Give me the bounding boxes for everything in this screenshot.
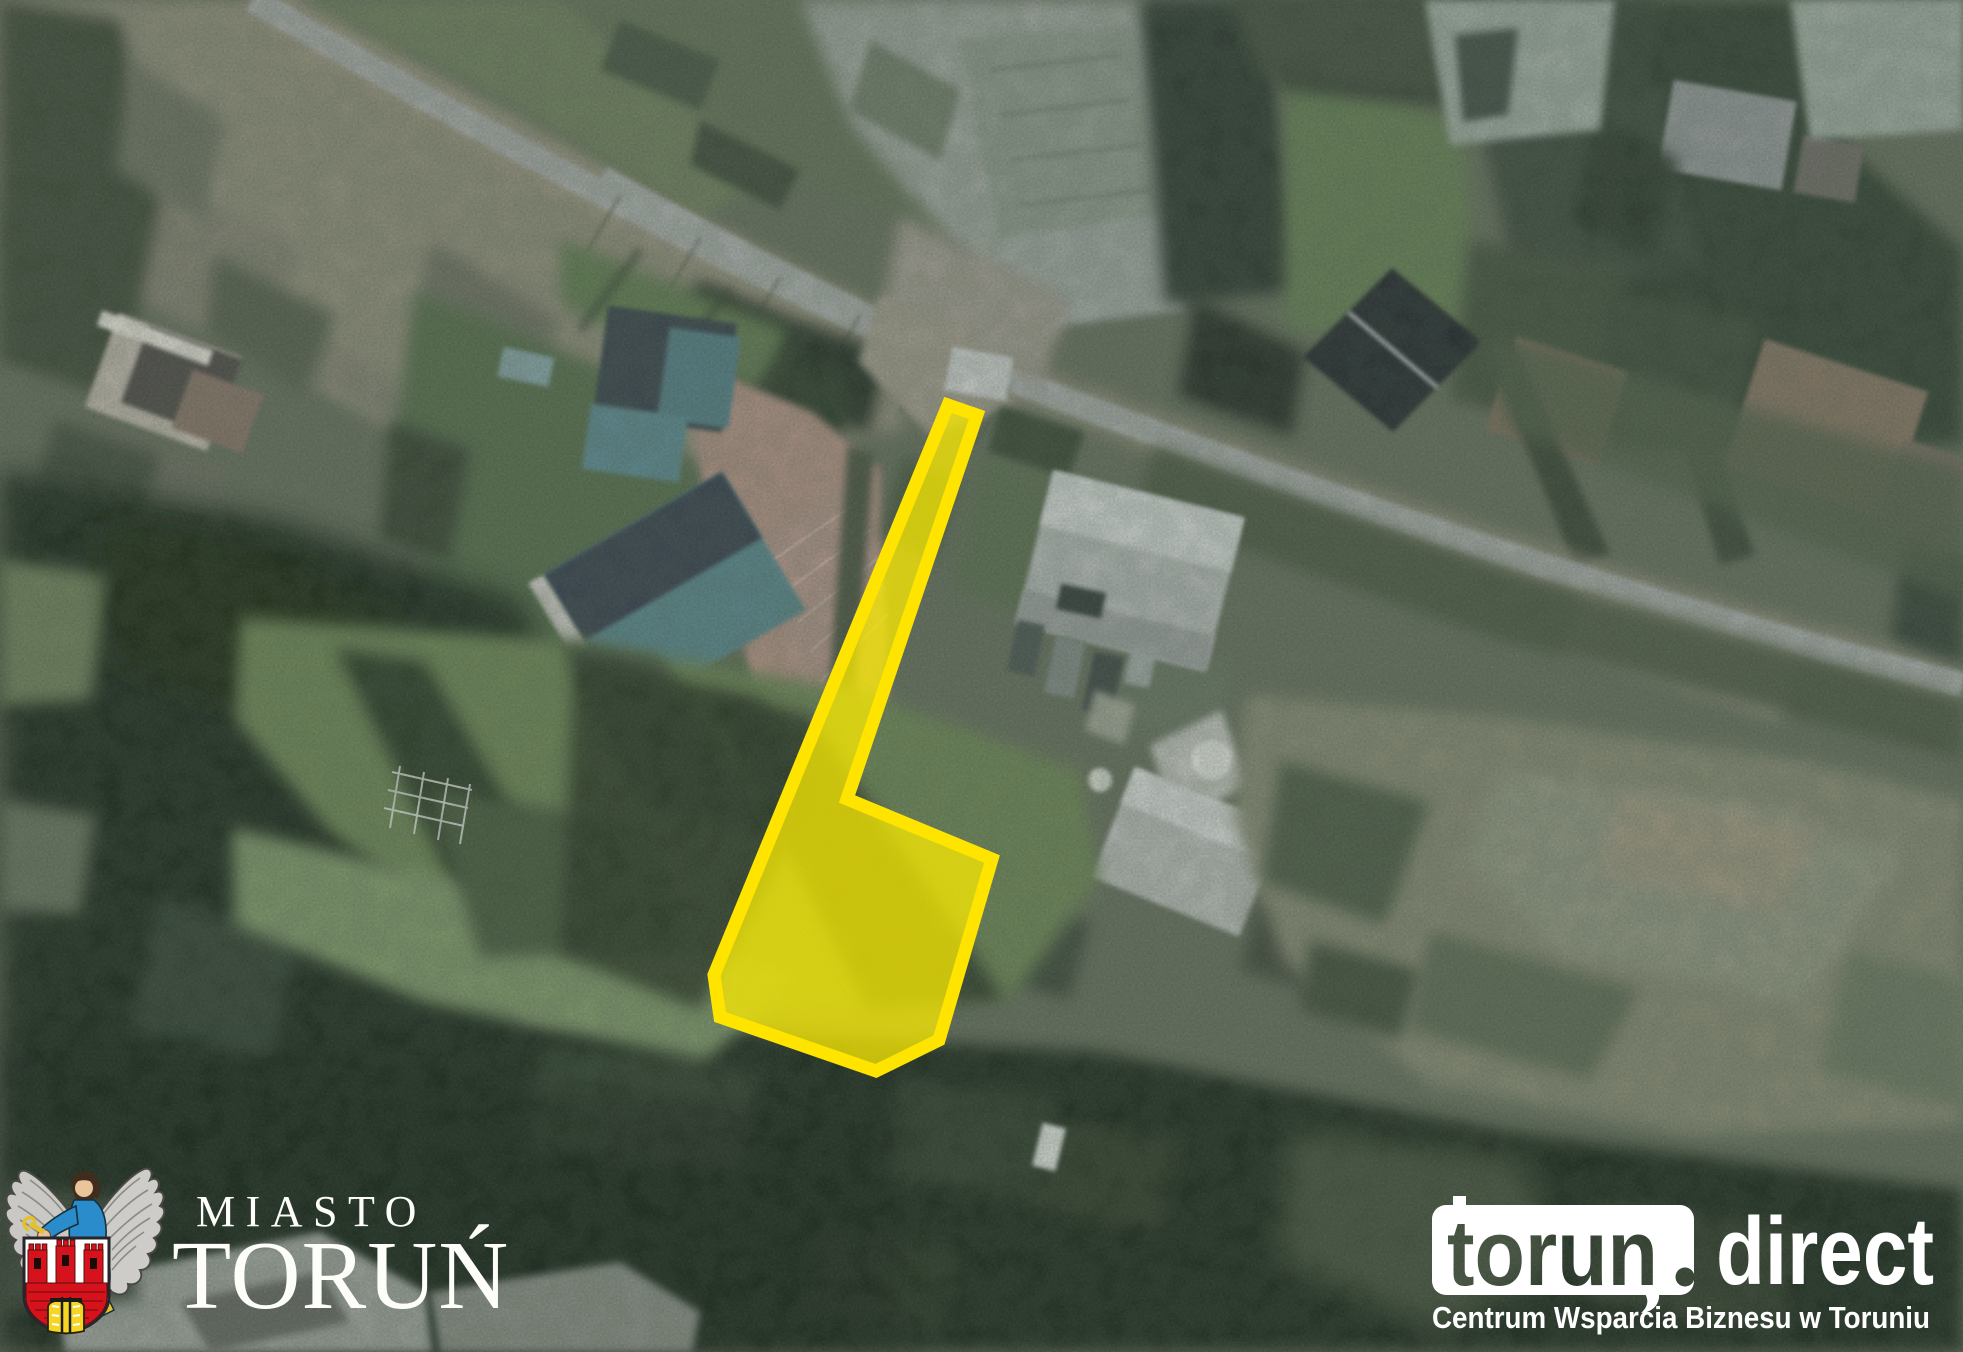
svg-text:direct: direct (1716, 1198, 1934, 1305)
svg-text:Centrum Wsparcia Biznesu w Tor: Centrum Wsparcia Biznesu w Toruniu (1432, 1300, 1930, 1335)
svg-text:TORUŃ: TORUŃ (172, 1222, 509, 1329)
